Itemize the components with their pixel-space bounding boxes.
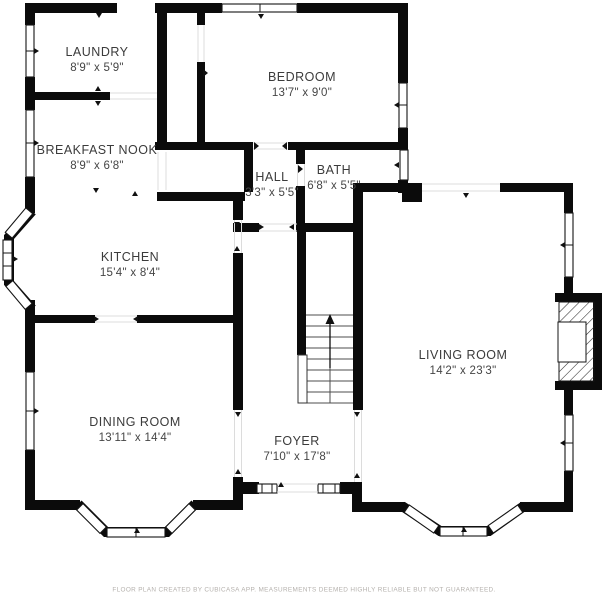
room-name: DINING ROOM	[89, 415, 181, 429]
floor-plan-drawing: LAUNDRY 8'9" x 5'9" BEDROOM 13'7" x 9'0"…	[0, 0, 609, 600]
footer-disclaimer: FLOOR PLAN CREATED BY CUBICASA APP. MEAS…	[112, 587, 495, 594]
room-dims: 15'4" x 8'4"	[100, 267, 160, 279]
stairs-up-arrow	[326, 314, 335, 368]
room-dims: 3'3" x 5'5"	[245, 187, 299, 199]
room-dims: 7'10" x 17'8"	[264, 451, 331, 463]
room-name: HALL	[255, 170, 288, 184]
room-label-dining-room: DINING ROOM 13'11" x 14'4"	[89, 415, 181, 444]
room-name: BATH	[317, 163, 351, 177]
room-dims: 13'7" x 9'0"	[272, 87, 332, 99]
room-name: LAUNDRY	[65, 45, 128, 59]
room-name: KITCHEN	[101, 250, 159, 264]
room-name: FOYER	[274, 434, 320, 448]
room-label-hall: HALL 3'3" x 5'5"	[245, 170, 299, 199]
firebox	[558, 322, 586, 362]
room-label-laundry: LAUNDRY 8'9" x 5'9"	[65, 45, 128, 74]
bay-window-breakfast	[3, 208, 33, 310]
room-label-bath: BATH 6'8" x 5'5"	[307, 163, 361, 192]
room-label-breakfast-nook: BREAKFAST NOOK 8'9" x 6'8"	[37, 143, 158, 172]
staircase	[298, 314, 353, 403]
room-label-living-room: LIVING ROOM 14'2" x 23'3"	[419, 348, 508, 377]
room-labels: LAUNDRY 8'9" x 5'9" BEDROOM 13'7" x 9'0"…	[37, 45, 508, 463]
room-label-bedroom: BEDROOM 13'7" x 9'0"	[268, 70, 336, 99]
room-dims: 6'8" x 5'5"	[307, 180, 361, 192]
room-name: BREAKFAST NOOK	[37, 143, 158, 157]
room-label-foyer: FOYER 7'10" x 17'8"	[264, 434, 331, 463]
floor-plan: LAUNDRY 8'9" x 5'9" BEDROOM 13'7" x 9'0"…	[0, 0, 609, 600]
room-dims: 8'9" x 5'9"	[70, 62, 124, 74]
room-dims: 13'11" x 14'4"	[99, 432, 172, 444]
room-dims: 14'2" x 23'3"	[430, 365, 497, 377]
room-label-kitchen: KITCHEN 15'4" x 8'4"	[100, 250, 160, 279]
fireplace	[555, 293, 602, 390]
room-name: BEDROOM	[268, 70, 336, 84]
room-dims: 8'9" x 6'8"	[70, 160, 124, 172]
room-name: LIVING ROOM	[419, 348, 508, 362]
